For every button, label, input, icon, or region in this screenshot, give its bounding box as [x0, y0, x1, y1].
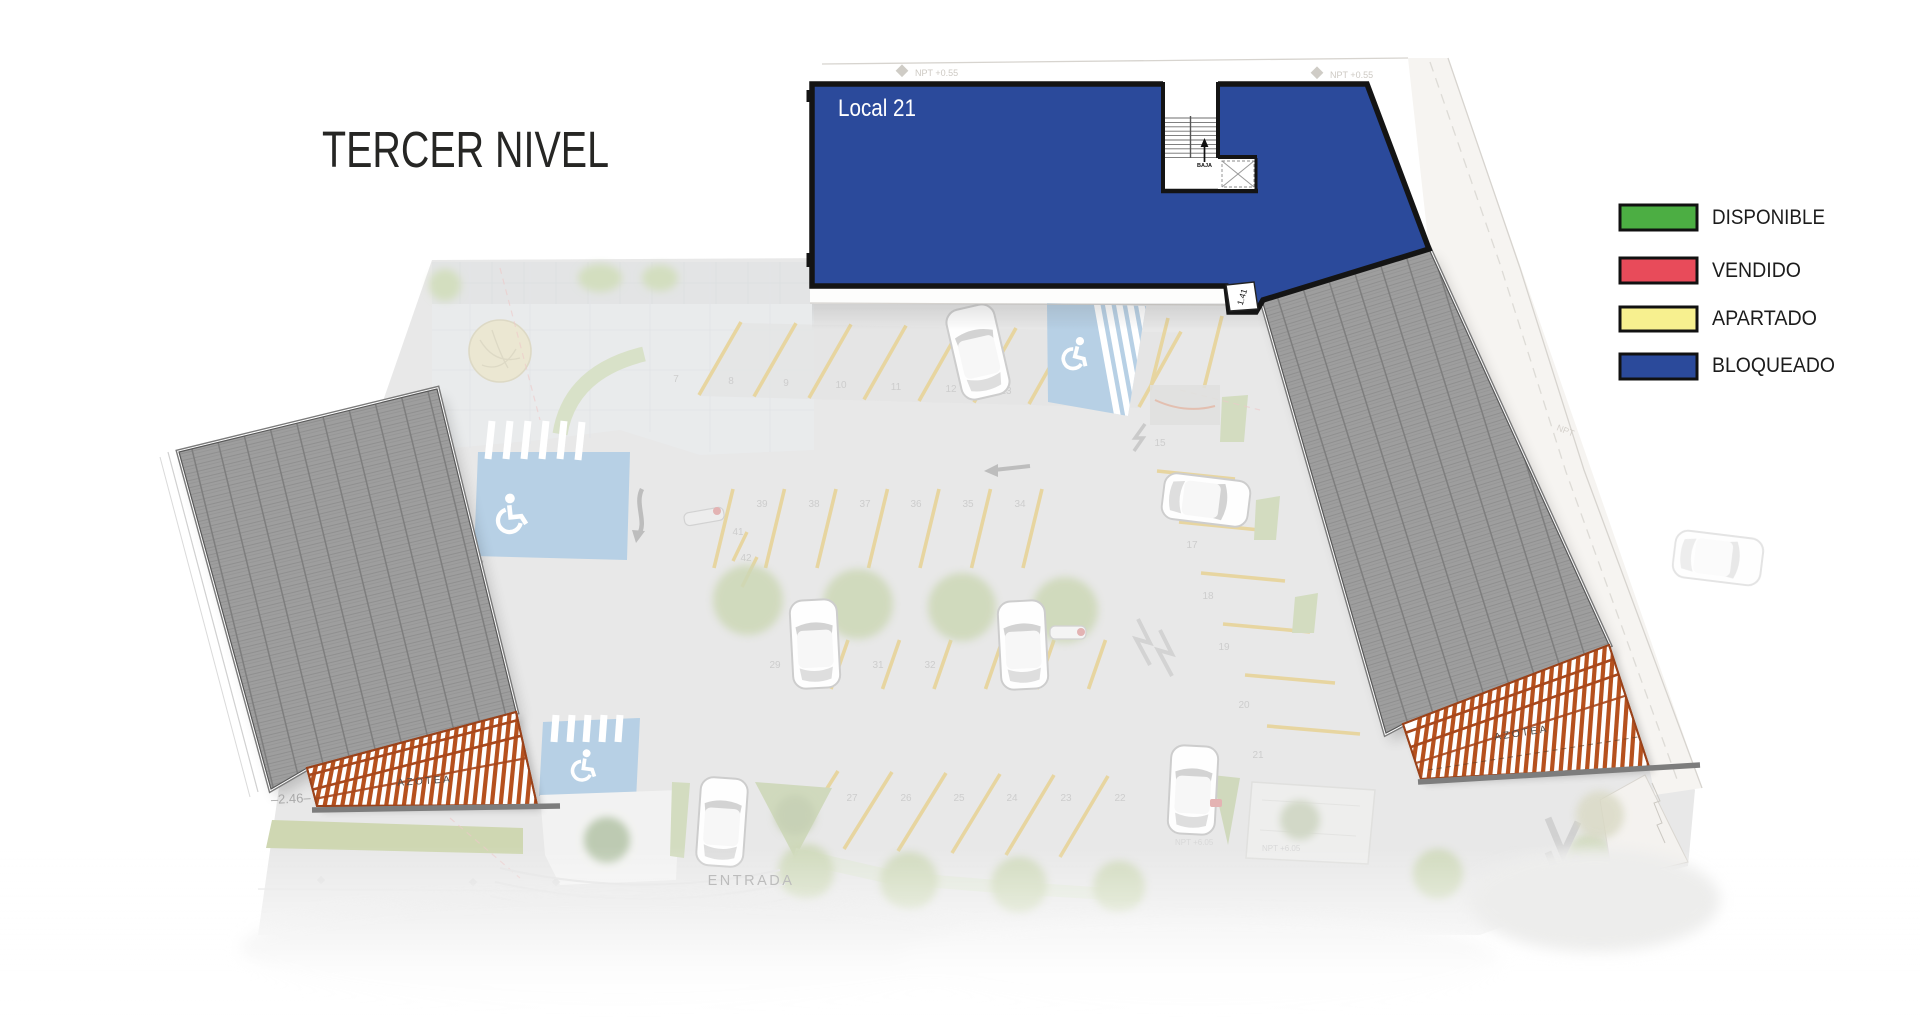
svg-text:DISPONIBLE: DISPONIBLE	[1712, 205, 1825, 229]
svg-text:29: 29	[769, 660, 781, 671]
svg-text:20: 20	[1238, 700, 1250, 711]
svg-text:22: 22	[1114, 793, 1126, 804]
svg-text:36: 36	[910, 499, 922, 510]
svg-text:12: 12	[945, 384, 957, 395]
svg-text:27: 27	[846, 793, 858, 804]
svg-text:18: 18	[1202, 591, 1214, 602]
svg-text:26: 26	[900, 793, 912, 804]
svg-text:VENDIDO: VENDIDO	[1712, 258, 1801, 282]
svg-text:25: 25	[953, 793, 965, 804]
svg-text:9: 9	[783, 378, 789, 389]
svg-text:TERCER NIVEL: TERCER NIVEL	[322, 121, 609, 178]
svg-text:35: 35	[962, 499, 974, 510]
svg-text:–2.46–: –2.46–	[270, 790, 311, 807]
svg-text:31: 31	[872, 660, 884, 671]
svg-text:Local 21: Local 21	[838, 95, 916, 122]
svg-text:38: 38	[808, 499, 820, 510]
svg-text:42: 42	[740, 553, 752, 564]
svg-text:41: 41	[732, 527, 744, 538]
svg-text:APARTADO: APARTADO	[1712, 306, 1817, 330]
svg-text:10: 10	[835, 380, 847, 391]
svg-text:19: 19	[1218, 642, 1230, 653]
svg-text:34: 34	[1014, 499, 1026, 510]
svg-text:15: 15	[1154, 438, 1166, 449]
svg-text:11: 11	[891, 382, 902, 393]
svg-text:21: 21	[1252, 750, 1264, 761]
svg-text:32: 32	[924, 660, 936, 671]
svg-text:BAJA: BAJA	[1197, 163, 1212, 169]
svg-text:24: 24	[1006, 793, 1018, 804]
svg-text:8: 8	[728, 376, 734, 387]
svg-text:ENTRADA: ENTRADA	[708, 873, 795, 889]
svg-text:NPT +0.55: NPT +0.55	[915, 68, 958, 78]
svg-text:NPT +0.55: NPT +0.55	[1330, 70, 1373, 80]
svg-text:7: 7	[673, 374, 679, 385]
svg-text:BLOQUEADO: BLOQUEADO	[1712, 353, 1835, 377]
svg-text:37: 37	[859, 499, 871, 510]
svg-text:39: 39	[756, 499, 768, 510]
svg-text:23: 23	[1060, 793, 1072, 804]
svg-text:17: 17	[1186, 540, 1198, 551]
